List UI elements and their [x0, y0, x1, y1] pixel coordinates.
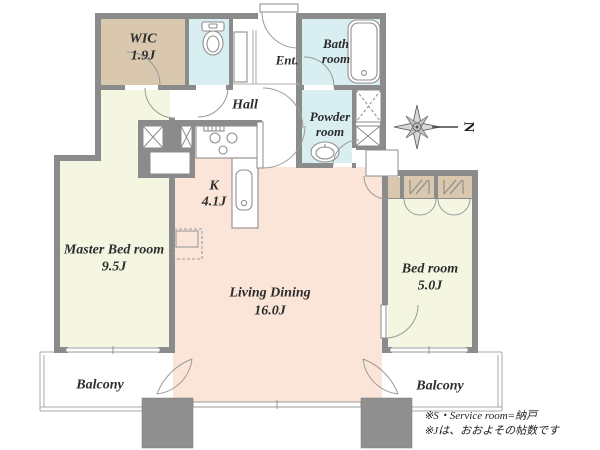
balcony-left-outline [40, 352, 142, 411]
bedroom-area-fill [388, 198, 472, 347]
footnote-jou: ※Jは、おおよその帖数です [424, 424, 600, 439]
shoe-cabinet-icon [234, 32, 247, 82]
pipe-space-box [366, 150, 398, 176]
toilet-icon [202, 22, 224, 55]
vanity-sink-icon [311, 142, 339, 162]
compass-icon [394, 105, 458, 149]
balcony-right-outline [412, 352, 502, 411]
pillar [142, 398, 193, 448]
footnotes: ※S・Service room=納戸 ※Jは、おおよその帖数です [424, 409, 600, 439]
compass-north-label: N [460, 122, 477, 133]
room-fills [60, 19, 472, 403]
wic-area-fill [101, 19, 185, 85]
kitchen-sink-icon [232, 158, 258, 228]
meter-box-icon [150, 152, 190, 174]
bathtub-icon [348, 20, 380, 83]
small-closet-fill [386, 177, 400, 198]
entrance-door [260, 4, 298, 48]
pillar [361, 398, 412, 448]
toilet-door-arc [198, 87, 228, 117]
stove-icon [196, 126, 258, 158]
footnote-service-room: ※S・Service room=納戸 [424, 409, 600, 424]
floor-plan: WIC 1.9J Ent. Hall Bath room Powder room… [0, 0, 600, 450]
utility-boxes [356, 90, 381, 146]
floor-plan-drawing [0, 0, 600, 450]
